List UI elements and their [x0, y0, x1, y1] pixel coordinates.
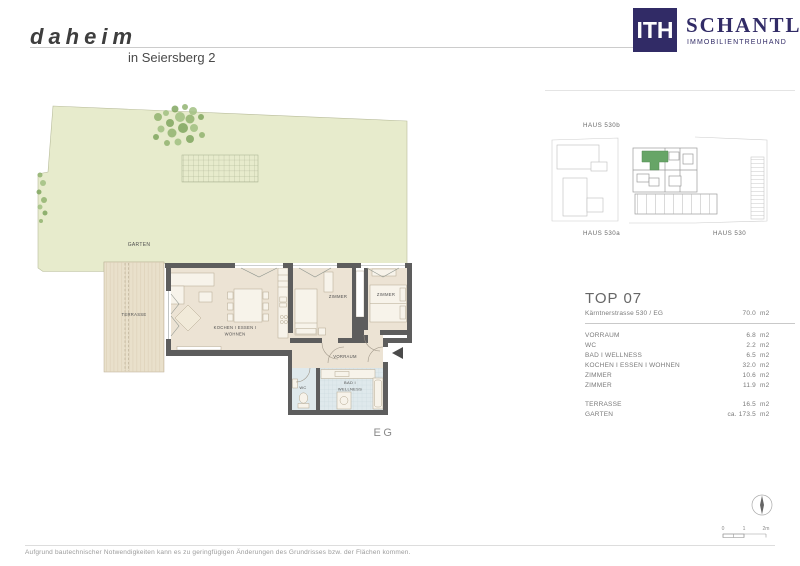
room-row: WC 2.2 m2 — [585, 342, 795, 352]
entry-arrow-icon — [392, 347, 403, 359]
terrasse-label: TERRASSE — [122, 312, 147, 317]
pergola-grid — [182, 155, 258, 182]
brochure-page: daheim in Seiersberg 2 ITH SCHANTL IMMOB… — [0, 0, 800, 566]
haus-530b-label: HAUS 530b — [583, 122, 620, 129]
coffee-table — [199, 292, 212, 302]
washing-machine — [337, 392, 351, 409]
level-label: EG — [374, 427, 395, 439]
haus-530a-label: HAUS 530a — [583, 230, 620, 237]
compass-and-scale: 0 1 2m — [715, 485, 800, 545]
zimmer1-label: ZIMMER — [329, 294, 347, 299]
room-row: ZIMMER 10.6 m2 — [585, 372, 795, 382]
disclaimer-text: Aufgrund bautechnischer Notwendigkeiten … — [25, 549, 411, 556]
agency-name: SCHANTL — [686, 13, 800, 38]
room-row: BAD I WELLNESS 6.5 m2 — [585, 352, 795, 362]
unit-address: Kärntnerstrasse 530 / EG — [585, 310, 663, 317]
site-buildings-530ab — [557, 145, 607, 216]
outdoor-row: GARTEN ca. 173.5 m2 — [585, 411, 795, 421]
unit-panel: TOP 07 Kärntnerstrasse 530 / EG 70.0 m2 … — [585, 290, 795, 421]
garden-area — [38, 106, 407, 272]
project-location: in Seiersberg 2 — [128, 50, 215, 65]
bad-label-2: WELLNESS — [338, 387, 362, 392]
footer-divider — [25, 545, 775, 546]
kitchen-counter — [278, 268, 288, 338]
room-row: KOCHEN I ESSEN I WOHNEN 32.0 m2 — [585, 362, 795, 372]
compass-icon — [752, 495, 772, 515]
svg-text:1: 1 — [743, 526, 746, 532]
unit-title: TOP 07 — [585, 290, 795, 307]
agency-tagline: IMMOBILIENTREUHAND — [687, 39, 787, 46]
haus-530-label: HAUS 530 — [713, 230, 746, 237]
unit-address-row: Kärntnerstrasse 530 / EG 70.0 m2 — [585, 310, 795, 321]
floor-plan: GARTEN TERRASSE KOCHEN I ESSEN I WOHNEN … — [30, 95, 430, 440]
unit-total-value: 70.0 — [663, 310, 756, 317]
outdoor-row: TERRASSE 16.5 m2 — [585, 401, 795, 411]
site-plan: HAUS 530b HAUS 530a HAUS 530 — [545, 100, 800, 248]
room-row: ZIMMER 11.9 m2 — [585, 382, 795, 392]
closet-niche — [356, 271, 364, 317]
sideboard — [177, 347, 221, 351]
room-row: VORRAUM 6.8 m2 — [585, 332, 795, 342]
svg-text:2m: 2m — [763, 526, 770, 532]
svg-text:0: 0 — [722, 526, 725, 532]
garten-label: GARTEN — [128, 242, 151, 248]
header-divider — [30, 47, 652, 48]
unit-total-unit: m2 — [760, 310, 773, 317]
scale-bar: 0 1 2m — [722, 526, 770, 538]
right-panel-divider — [545, 90, 795, 91]
terrace-area — [104, 262, 164, 372]
unit-panel-divider — [585, 323, 795, 324]
zimmer2-label: ZIMMER — [377, 292, 395, 297]
kitchen-label-1: KOCHEN I ESSEN I — [214, 325, 257, 330]
bad-label-1: BAD I — [344, 380, 356, 385]
ith-logo: ITH — [633, 8, 677, 52]
vorraum-label: VORRAUM — [333, 354, 357, 359]
kitchen-label-2: WOHNEN — [225, 332, 246, 337]
wc-label: WC — [299, 385, 306, 390]
site-lower-building — [635, 194, 717, 214]
